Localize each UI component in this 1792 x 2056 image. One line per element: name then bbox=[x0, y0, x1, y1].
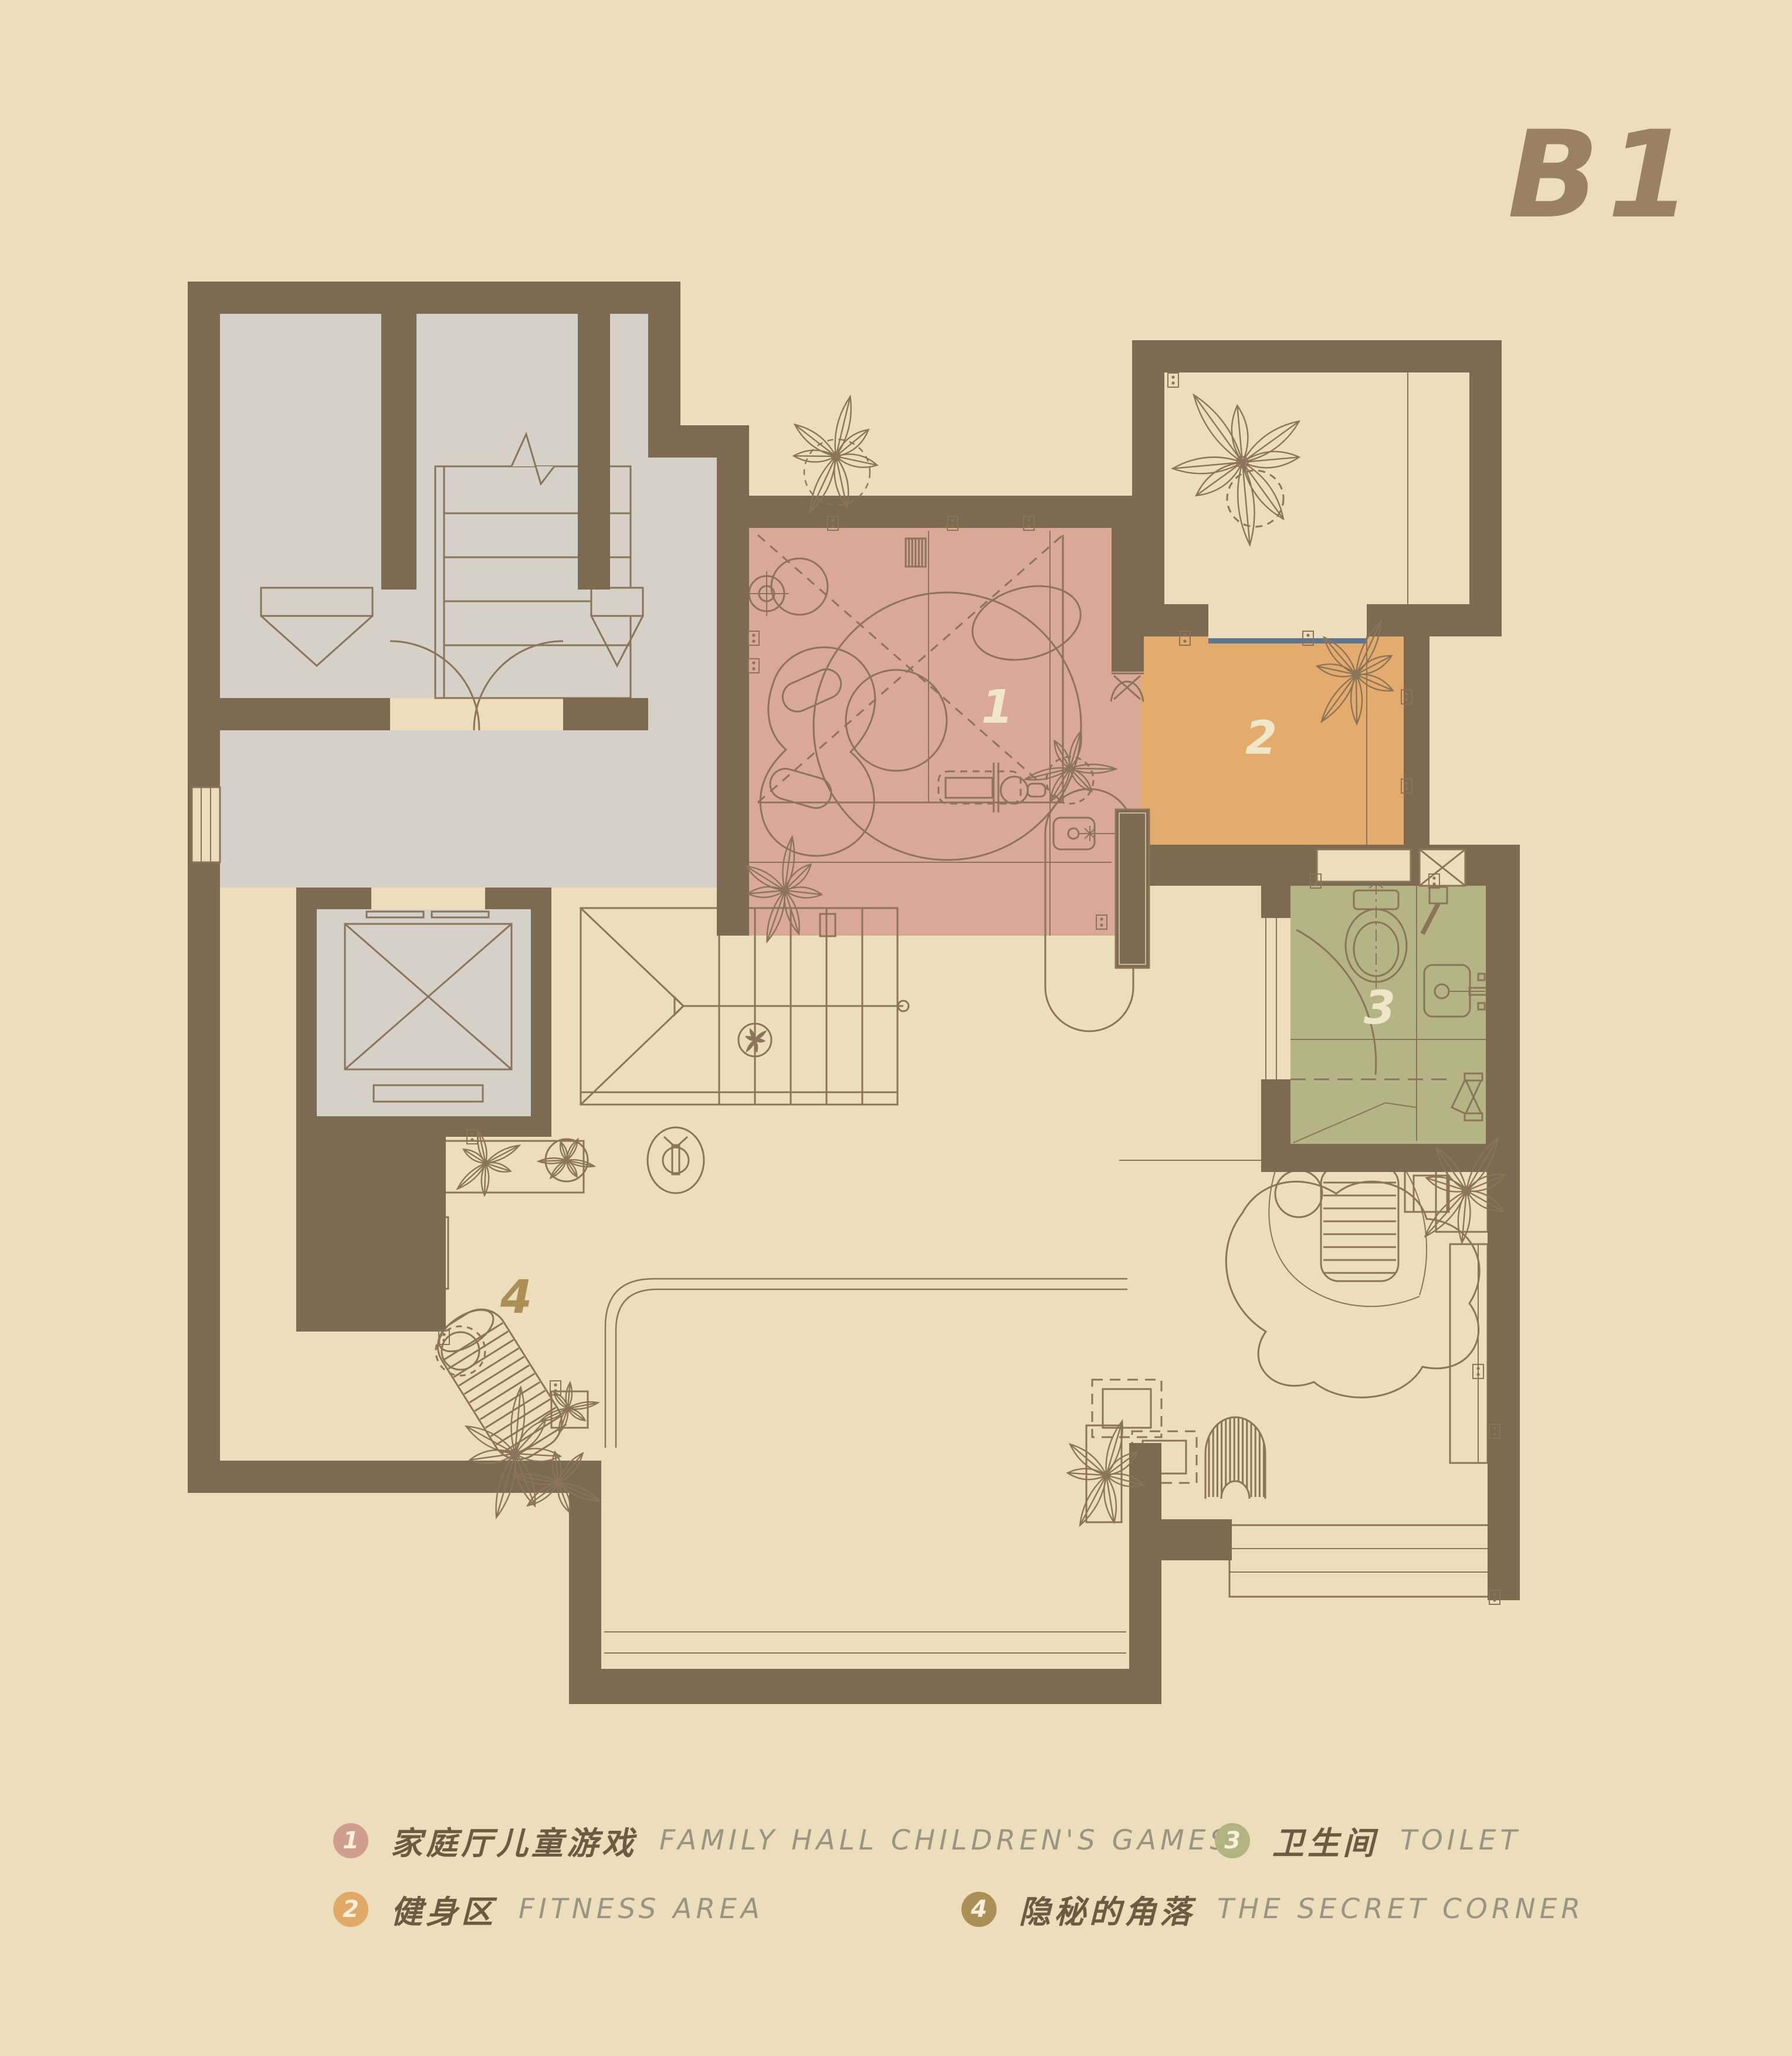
tall-cabinet bbox=[1116, 809, 1149, 968]
bedroom-window bbox=[1229, 1525, 1489, 1597]
legend-zh-1: 家庭厅儿童游戏 bbox=[391, 1817, 637, 1864]
legend-zh-2: 健身区 bbox=[391, 1886, 496, 1932]
legend-en-2: FITNESS AREA bbox=[519, 1893, 764, 1925]
floorplan-page: B1 bbox=[0, 0, 1792, 2056]
legend-item-4: 4 隐秘的角落 THE SECRET CORNER bbox=[961, 1886, 1584, 1932]
plan-room-label-1: 1 bbox=[981, 681, 1013, 734]
curtain-track bbox=[605, 1279, 1127, 1448]
legend-item-1: 1 家庭厅儿童游戏 FAMILY HALL CHILDREN'S GAMES bbox=[333, 1817, 1231, 1864]
legend-en-4: THE SECRET CORNER bbox=[1217, 1893, 1584, 1925]
plan-room-label-4: 4 bbox=[500, 1271, 532, 1324]
plan-room-label-3: 3 bbox=[1364, 982, 1395, 1035]
blob-rug bbox=[1226, 1181, 1479, 1397]
legend-en-3: TOILET bbox=[1400, 1824, 1521, 1857]
legend-zh-4: 隐秘的角落 bbox=[1019, 1886, 1195, 1932]
play-tent bbox=[1205, 1417, 1265, 1499]
legend-badge-4: 4 bbox=[961, 1892, 997, 1927]
small-shaft bbox=[1420, 849, 1465, 886]
togo-chaise bbox=[1321, 1157, 1398, 1281]
desk bbox=[1450, 1244, 1488, 1463]
legend-badge-2: 2 bbox=[333, 1892, 368, 1927]
legend-zh-3: 卫生间 bbox=[1272, 1817, 1378, 1864]
legend-badge-3: 3 bbox=[1215, 1823, 1250, 1858]
legend-item-2: 2 健身区 FITNESS AREA bbox=[333, 1886, 764, 1932]
legend-en-1: FAMILY HALL CHILDREN'S GAMES bbox=[659, 1824, 1231, 1857]
floorplan-drawing: 1234 bbox=[0, 0, 1792, 2056]
plan-room-label-2: 2 bbox=[1245, 712, 1277, 765]
topright-room-lines bbox=[1227, 372, 1408, 604]
stair-lower bbox=[581, 908, 909, 1105]
legend-item-3: 3 卫生间 TOILET bbox=[1215, 1817, 1521, 1864]
threshold-line bbox=[1208, 638, 1367, 643]
legend-badge-1: 1 bbox=[333, 1823, 368, 1858]
